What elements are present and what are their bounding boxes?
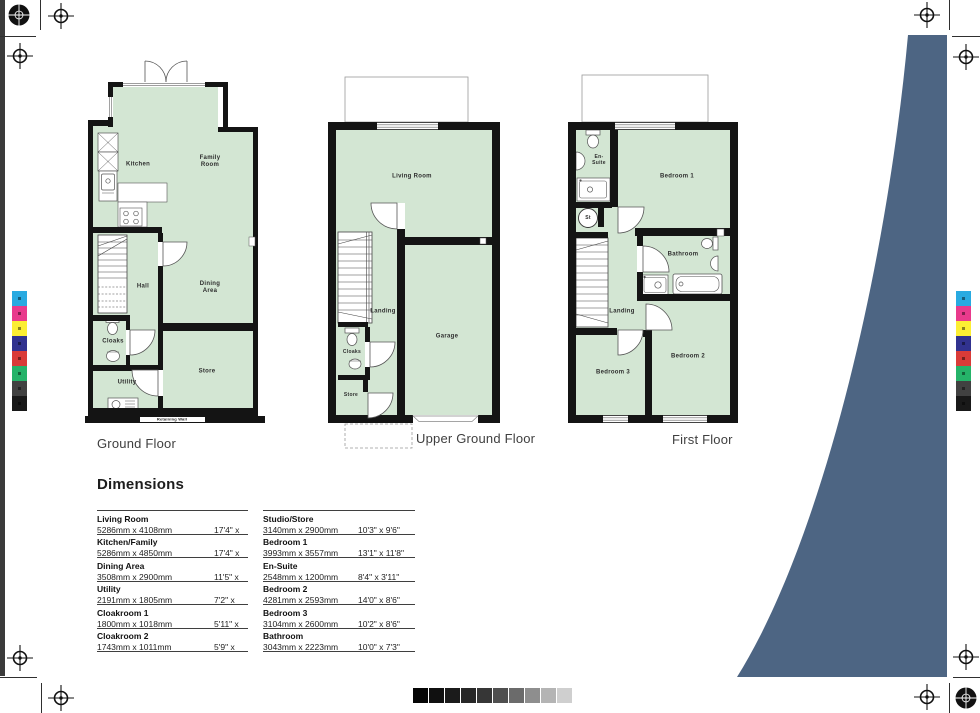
dimension-row: Bedroom 3 3104mm x 2600mm10'2" x 8'6" [263,604,415,628]
room-label-bedroom-3: Bedroom 3 [596,369,630,376]
dimension-metric: 2548mm x 1200mm [263,572,358,581]
color-swatch-yellow [956,321,971,336]
dimension-imperial: 14'0" x 8'6" [358,595,400,604]
room-label-dining-area: Dining Area [196,281,224,295]
crop-mark [0,36,36,37]
room-label-cloaks: Cloaks [343,349,361,355]
registration-mark-icon [953,44,979,70]
color-swatch-magenta [12,306,27,321]
dimension-room-name: Living Room [97,511,248,524]
dimension-row: Utility 2191mm x 1805mm7'2" x 5'11" [97,581,248,605]
french-doors [145,61,187,82]
dimension-row: Kitchen/Family 5286mm x 4850mm17'4" x 15… [97,534,248,558]
terrace-outline [345,77,468,122]
dimensions-heading: Dimensions [97,476,184,493]
dimension-metric: 3993mm x 3557mm [263,548,358,557]
crop-mark [41,683,42,713]
grayscale-step [445,688,460,703]
dimension-row: Studio/Store 3140mm x 2900mm10'3" x 9'6" [263,510,415,534]
room-label-family-room: Family Room [196,155,224,169]
room-label-kitchen: Kitchen [126,161,150,168]
grayscale-step [413,688,428,703]
color-calibration-bar-right [956,291,971,411]
upper-ground-floor-title: Upper Ground Floor [416,431,535,446]
dimension-imperial: 10'0" x 7'3" [358,642,400,651]
ground-floor-plan: Kitchen Family Room Hall Dining Area Clo… [85,55,265,430]
registration-mark-icon [953,644,979,670]
color-swatch-magenta [956,306,971,321]
print-target-icon [953,685,979,711]
dimension-metric: 2191mm x 1805mm [97,595,214,604]
crop-mark [0,677,37,678]
dimension-metric: 3043mm x 2223mm [263,642,358,651]
color-swatch-yellow [12,321,27,336]
registration-mark-icon [914,684,940,710]
dimension-metric: 3508mm x 2900mm [97,572,214,581]
page-edge-strip [0,0,5,676]
registration-mark-icon [48,3,74,29]
color-swatch-black [956,396,971,411]
room-label-store: Store [344,392,358,398]
dimension-room-name: Bathroom [263,629,415,642]
meter-box [717,229,724,236]
dimension-imperial: 10'3" x 9'6" [358,525,400,534]
room-label-ensuite: En-Suite [589,154,609,166]
dimensions-column-right: Studio/Store 3140mm x 2900mm10'3" x 9'6"… [263,510,415,652]
dimension-metric: 5286mm x 4850mm [97,548,214,557]
driveway-outline [345,424,412,448]
room-label-bedroom-1: Bedroom 1 [660,173,694,180]
dimension-metric: 3104mm x 2600mm [263,619,358,628]
dimension-row: Cloakroom 2 1743mm x 1011mm5'9" x 3'4" [97,628,248,652]
storage-cupboard-label: St [585,215,591,221]
dimension-imperial: 10'2" x 8'6" [358,619,400,628]
grayscale-step [493,688,508,703]
color-swatch-red [956,351,971,366]
registration-mark-icon [7,645,33,671]
garage-door [413,415,478,423]
room-label-living-room: Living Room [391,173,433,180]
room-label-cloaks: Cloaks [102,338,123,345]
room-label-store: Store [199,368,216,375]
dimension-row: En-Suite 2548mm x 1200mm8'4" x 3'11" [263,557,415,581]
room-label-bedroom-2: Bedroom 2 [671,353,705,360]
dimension-metric: 1743mm x 1011mm [97,642,214,651]
dimension-room-name: Bedroom 1 [263,535,415,548]
dimension-row: Dining Area 3508mm x 2900mm11'5" x 9'6" [97,557,248,581]
dimension-row: Cloakroom 1 1800mm x 1018mm5'11" x 3'4" [97,604,248,628]
color-swatch-green [956,366,971,381]
meter-box [249,237,255,246]
grayscale-step [557,688,572,703]
room-label-utility: Utility [118,379,137,386]
upper-stairs [338,232,372,323]
room-label-bathroom: Bathroom [668,251,699,258]
color-swatch-gray [12,381,27,396]
color-swatch-red [12,351,27,366]
dimension-metric: 3140mm x 2900mm [263,525,358,534]
ground-floor-title: Ground Floor [97,436,176,451]
grayscale-step [509,688,524,703]
grayscale-step [541,688,556,703]
room-label-landing: Landing [370,308,395,315]
color-swatch-black [12,396,27,411]
upper-ground-floor-plan: Living Room Landing Cloaks Store Garage [325,70,515,450]
dimension-room-name: Studio/Store [263,511,415,524]
room-label-hall: Hall [137,283,149,290]
dimension-metric: 4281mm x 2593mm [263,595,358,604]
dimension-metric: 1800mm x 1018mm [97,619,214,628]
meter-box [480,238,486,244]
dimension-row: Living Room 5286mm x 4108mm17'4" x 13'5" [97,510,248,534]
color-swatch-cyan [956,291,971,306]
crop-mark [40,0,41,30]
dimension-metric: 5286mm x 4108mm [97,525,214,534]
retaining-wall-label: Retaining Wall [157,417,187,422]
dimension-row: Bedroom 1 3993mm x 3557mm13'1" x 11'8" [263,534,415,558]
dimension-room-name: Bedroom 3 [263,605,415,618]
print-target-icon [6,2,32,28]
wall-openings [637,246,643,272]
crop-mark [949,683,950,713]
color-swatch-gray [956,381,971,396]
registration-mark-icon [7,43,33,69]
room-label-garage: Garage [436,333,458,340]
dimension-imperial: 17'4" x 15'11" [214,548,248,557]
dimension-imperial: 17'4" x 13'5" [214,525,248,534]
grayscale-step [429,688,444,703]
grayscale-step [477,688,492,703]
color-swatch-blue [12,336,27,351]
registration-mark-icon [914,2,940,28]
crop-mark [953,677,980,678]
dimension-imperial: 5'9" x 3'4" [214,642,248,651]
crop-mark [952,36,980,37]
color-calibration-bar-left [12,291,27,411]
windows [377,123,438,129]
dimension-imperial: 11'5" x 9'6" [214,572,248,581]
dimension-room-name: Bedroom 2 [263,582,415,595]
ground-stairs [98,235,127,313]
terrace-outline [582,75,708,122]
crop-mark [949,0,950,30]
first-stairs [576,238,608,327]
grayscale-calibration-bar [413,688,572,703]
first-floor-plan: En-Suite St Bedroom 1 Bathroom Landing B… [560,65,750,450]
dimension-imperial: 13'1" x 11'8" [358,548,404,557]
dimension-imperial: 8'4" x 3'11" [358,572,399,581]
floorplan-sheet: Kitchen Family Room Hall Dining Area Clo… [0,0,980,713]
dimension-room-name: Cloakroom 2 [97,629,248,642]
dimension-room-name: Kitchen/Family [97,535,248,548]
room-label-landing: Landing [609,308,634,315]
grayscale-step [461,688,476,703]
dimension-room-name: Utility [97,582,248,595]
first-floor-title: First Floor [672,432,733,447]
color-swatch-green [12,366,27,381]
dimensions-column-left: Living Room 5286mm x 4108mm17'4" x 13'5"… [97,510,248,652]
grayscale-step [525,688,540,703]
color-swatch-blue [956,336,971,351]
dimension-room-name: Dining Area [97,558,248,571]
dimension-imperial: 5'11" x 3'4" [214,619,248,628]
dimension-row: Bathroom 3043mm x 2223mm10'0" x 7'3" [263,628,415,652]
dimension-room-name: En-Suite [263,558,415,571]
dimension-room-name: Cloakroom 1 [97,605,248,618]
registration-mark-icon [48,685,74,711]
color-swatch-cyan [12,291,27,306]
dimension-imperial: 7'2" x 5'11" [214,595,248,604]
dimension-row: Bedroom 2 4281mm x 2593mm14'0" x 8'6" [263,581,415,605]
